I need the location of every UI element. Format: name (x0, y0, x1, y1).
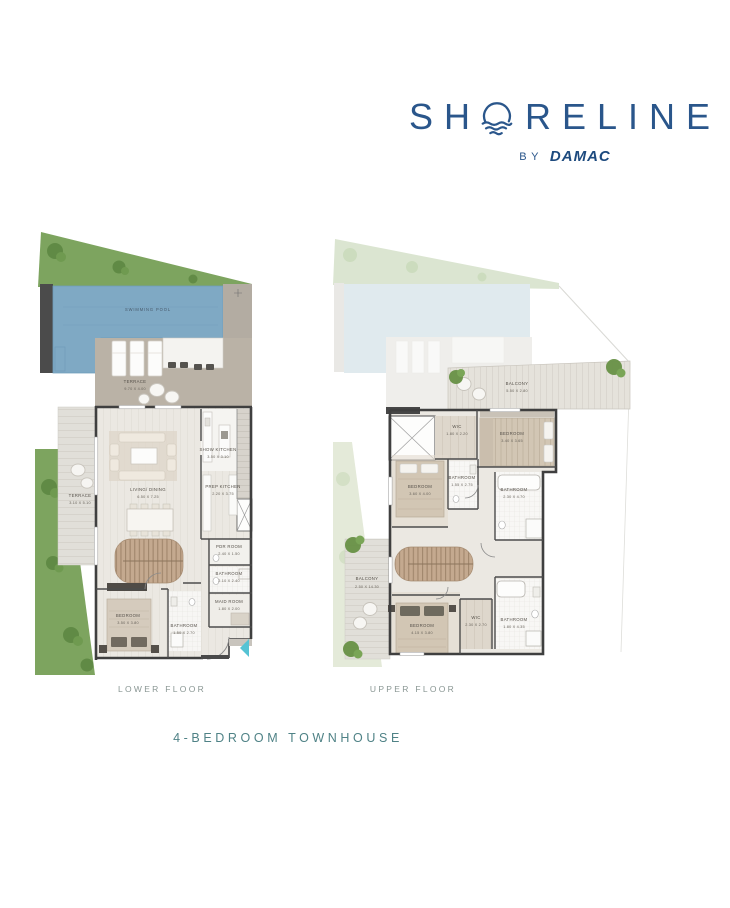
bathroom-master-label: BATHROOM (501, 617, 528, 622)
bedroom-master-label: BEDROOM (410, 623, 434, 628)
wic-master: WIC 2.30 X 2.70 (460, 599, 492, 649)
upper-floor-drawing: BALCONY 5.50 X 2.80 BALCONY 2.50 X 14.30 (330, 227, 632, 672)
wic-master-label: WIC (471, 615, 480, 620)
pool-side-wall (40, 284, 53, 373)
shoreline-logo: SH RELINE BY DAMAC (409, 96, 721, 165)
wic-top-dims: 1.80 X 2.20 (446, 432, 468, 436)
pdr-room-label: PDR ROOM (216, 544, 242, 549)
by-label: BY (519, 151, 543, 163)
ensuite-bathroom-label: BATHROOM (171, 623, 198, 628)
lower-floor-caption: LOWER FLOOR (118, 684, 206, 694)
bathroom-right-label: BATHROOM (501, 487, 528, 492)
bedroom-mid-label: BEDROOM (408, 484, 432, 489)
rear-balcony-label: BALCONY (506, 381, 529, 386)
upper-floor-plan: BALCONY 5.50 X 2.80 BALCONY 2.50 X 14.30 (330, 227, 632, 672)
wic-top-label: WIC (452, 424, 461, 429)
bedroom-dims: 3.50 X 3.80 (117, 621, 139, 625)
show-kitchen-label: SHOW KITCHEN (199, 447, 236, 452)
upper-staircase (395, 547, 473, 581)
living-dining-dims: 6.50 X 7.25 (137, 495, 159, 499)
page-title: 4-BEDROOM TOWNHOUSE (173, 731, 403, 745)
staircase (115, 539, 183, 583)
lower-house: SHOW KITCHEN 3.50 X 3.10 LIVING/ DINING … (94, 405, 252, 660)
logo-byline: BY DAMAC (409, 148, 721, 165)
pdr-room-dims: 2.40 X 1.50 (218, 552, 240, 556)
bedroom-master: BEDROOM 4.15 X 3.80 (388, 592, 460, 654)
terrace-side-label: TERRACE (69, 493, 92, 498)
bedroom-top: BEDROOM 3.40 X 3.65 (480, 411, 554, 466)
bedroom-label: BEDROOM (116, 613, 140, 618)
terrace-main-dims: 9.70 X 4.00 (124, 387, 146, 391)
bathroom-master-dims: 1.80 X 4.35 (503, 625, 525, 629)
lower-pool-terrace: SWIMMING POOL TERRACE 9.70 X 4.00 (40, 284, 252, 406)
bathroom-mid-label: BATHROOM (449, 475, 476, 480)
guest-bathroom: BATHROOM 2.10 X 2.40 (209, 567, 252, 593)
upper-floor-caption: UPPER FLOOR (370, 684, 456, 694)
logo-text-end: RELINE (525, 96, 721, 138)
prep-kitchen-label: PREP KITCHEN (205, 484, 240, 489)
logo-text-start: SH (409, 96, 481, 138)
logo-wordmark: SH RELINE (409, 96, 721, 138)
front-balcony-dims: 2.50 X 14.30 (355, 585, 379, 589)
bathroom-mid: BATHROOM 1.55 X 2.75 (448, 461, 478, 509)
bedroom-mid: BEDROOM 3.60 X 4.00 (392, 455, 448, 527)
maid-room-dims: 1.80 X 2.00 (218, 607, 240, 611)
bathroom-label: BATHROOM (216, 571, 243, 576)
wic-master-dims: 2.30 X 2.70 (465, 623, 487, 627)
sun-over-waves-icon (478, 98, 516, 136)
bedroom-mid-dims: 3.60 X 4.00 (409, 492, 431, 496)
living-dining-label: LIVING/ DINING (130, 487, 166, 492)
bedroom-top-dims: 3.40 X 3.65 (501, 439, 523, 443)
swimming-pool-label: SWIMMING POOL (125, 307, 171, 312)
bedroom-master-dims: 4.15 X 3.80 (411, 631, 433, 635)
lower-floor-drawing: SWIMMING POOL TERRACE 9.70 X 4.00 TERRAC… (33, 227, 270, 679)
rear-balcony-dims: 5.50 X 2.80 (506, 389, 528, 393)
pdr-room: PDR ROOM 2.40 X 1.50 (209, 539, 252, 565)
stair-void (389, 416, 435, 460)
sun-loungers (112, 341, 162, 376)
terrace-side-dims: 3.10 X 5.10 (69, 501, 91, 505)
maid-room-label: MAID ROOM (215, 599, 243, 604)
bedroom-top-label: BEDROOM (500, 431, 524, 436)
front-balcony-label: BALCONY (356, 576, 379, 581)
bathroom-right-dims: 2.30 X 4.70 (503, 495, 525, 499)
bathroom-dims: 2.10 X 2.40 (218, 579, 240, 583)
upper-house: WIC 1.80 X 2.20 BEDROOM 3.40 X 3.65 (386, 407, 556, 656)
front-balcony: BALCONY 2.50 X 14.30 (343, 536, 390, 660)
brochure-page: SH RELINE BY DAMAC (0, 0, 730, 908)
damac-brand: DAMAC (550, 148, 611, 165)
bathroom-master: BATHROOM 1.80 X 4.35 (495, 579, 543, 649)
maid-room: MAID ROOM 1.80 X 2.00 (209, 595, 252, 627)
dining-table (127, 504, 173, 536)
ensuite-bathroom-dims: 1.50 X 2.70 (173, 631, 195, 635)
prep-kitchen-dims: 2.20 X 3.75 (212, 492, 234, 496)
ensuite-bathroom: BATHROOM 1.50 X 2.70 (168, 591, 201, 651)
show-kitchen-dims: 3.50 X 3.10 (207, 455, 229, 459)
bathroom-right: BATHROOM 2.30 X 4.70 (495, 472, 543, 540)
wic-top: WIC 1.80 X 2.20 (435, 416, 477, 459)
terrace-main-label: TERRACE (124, 379, 147, 384)
lower-floor-plan: SWIMMING POOL TERRACE 9.70 X 4.00 TERRAC… (33, 227, 270, 679)
bathroom-mid-dims: 1.55 X 2.75 (451, 483, 473, 487)
